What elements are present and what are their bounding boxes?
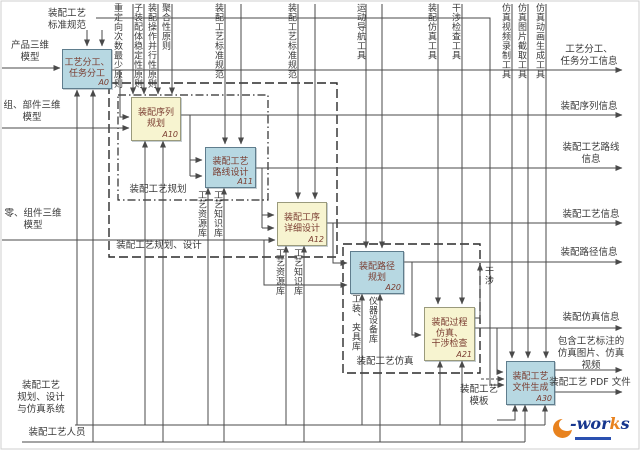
eworks-logo-text: -works	[570, 414, 630, 433]
resource-fixture-lib-label: 工装、夹具库	[350, 294, 359, 356]
box-label: 装配过程 仿真、 干涉检查	[431, 318, 467, 350]
activity-box-a0: 工艺分工、 任务分工A0	[62, 49, 112, 89]
idef0-assembly-process-diagram: 工艺分工、 任务分工A0 装配序列 规划A10 装配工艺 路线设计A11 装配工…	[0, 0, 640, 450]
output-route-info-label: 装配工艺路线 信息	[550, 142, 632, 166]
input-component-model-label: 组、部件三维 模型	[0, 100, 64, 124]
logo-word-mid: wor	[577, 414, 610, 433]
box-code: A0	[98, 78, 109, 88]
control-principle-subassembly-stability-label: 子装配体稳定性原则	[132, 3, 141, 97]
logo-dash: -	[570, 414, 577, 433]
mechanism-template-label: 装配工艺 模板	[456, 384, 502, 408]
control-sim-video-tool-label: 仿真视频录制工具	[500, 3, 509, 85]
output-process-info-label: 装配工艺信息	[550, 209, 632, 221]
resource-process-resource-lib-a11-label: 工艺资源库	[196, 190, 205, 246]
box-label: 装配路径 规划	[359, 262, 395, 284]
box-code: A21	[456, 350, 472, 360]
eworks-logo: -works	[553, 413, 639, 445]
activity-box-a20: 装配路径 规划A20	[350, 251, 404, 294]
resource-process-knowledge-lib-a12-label: 工艺知识库	[292, 248, 301, 304]
control-sim-animation-tool-label: 仿真动画生成工具	[534, 3, 543, 85]
output-path-info-label: 装配路径信息	[548, 247, 630, 259]
box-label: 装配工序 详细设计	[284, 213, 320, 235]
control-principle-aggregation-label: 聚合性原则	[160, 3, 169, 63]
group-simulation-label: 装配工艺仿真	[349, 356, 421, 368]
resource-process-resource-lib-a12-label: 工艺资源库	[274, 248, 283, 304]
control-assembly-sim-tool-label: 装配仿真工具	[426, 3, 435, 69]
group-planning-label: 装配工艺规划	[122, 184, 194, 196]
output-pdf-file-label: 装配工艺 PDF 文件	[543, 377, 637, 389]
resource-equipment-lib-label: 仪器设备库	[367, 296, 376, 354]
control-interference-check-tool-label: 干涉检查工具	[450, 3, 459, 69]
control-standard-spec-a11-label: 装配工艺标准规范	[213, 3, 222, 88]
box-code: A12	[308, 235, 324, 245]
box-code: A11	[237, 177, 253, 187]
box-label: 装配序列 规划	[138, 108, 174, 130]
control-standard-spec-label: 装配工艺 标准规范	[38, 8, 96, 32]
activity-box-a11: 装配工艺 路线设计A11	[205, 147, 256, 188]
box-code: A20	[385, 283, 401, 293]
control-principle-parallel-operation-label: 装配操作并行性原则	[146, 3, 155, 97]
output-simulation-info-label: 装配仿真信息	[550, 312, 632, 324]
logo-word-end: s	[621, 414, 630, 433]
control-motion-nav-tool-label: 运动导航工具	[355, 3, 364, 69]
output-task-division-info-label: 工艺分工、 任务分工信息	[545, 44, 633, 68]
input-part-model-label: 零、组件三维 模型	[0, 208, 66, 232]
control-standard-spec-a12-label: 装配工艺标准规范	[286, 3, 295, 88]
resource-process-knowledge-lib-a11-label: 工艺知识库	[212, 190, 221, 246]
box-label: 工艺分工、 任务分工	[64, 58, 109, 80]
box-code: A30	[536, 394, 552, 404]
activity-box-a21: 装配过程 仿真、 干涉检查A21	[424, 307, 475, 361]
box-label: 装配工艺 路线设计	[212, 157, 248, 179]
control-principle-reorientation-label: 重定向次数最少原则	[112, 3, 121, 97]
eworks-logo-bar	[575, 437, 611, 440]
box-code: A10	[162, 130, 178, 140]
output-annotated-media-label: 包含工艺标注的 仿真图片、仿真 视频	[546, 336, 636, 372]
mechanism-system-label: 装配工艺 规划、设计 与仿真系统	[8, 380, 74, 416]
input-product-model-label: 产品三维 模型	[2, 40, 58, 64]
feedback-interference-label: 干涉	[483, 266, 492, 292]
output-sequence-info-label: 装配序列信息	[548, 101, 630, 113]
logo-word-accent: k	[610, 414, 621, 433]
activity-box-a12: 装配工序 详细设计A12	[277, 202, 327, 246]
group-planning-design-label: 装配工艺规划、设计	[110, 240, 208, 252]
mechanism-personnel-label: 装配工艺人员	[20, 427, 94, 439]
control-sim-image-tool-label: 仿真图片截取工具	[516, 3, 525, 85]
activity-box-a10: 装配序列 规划A10	[131, 97, 181, 141]
